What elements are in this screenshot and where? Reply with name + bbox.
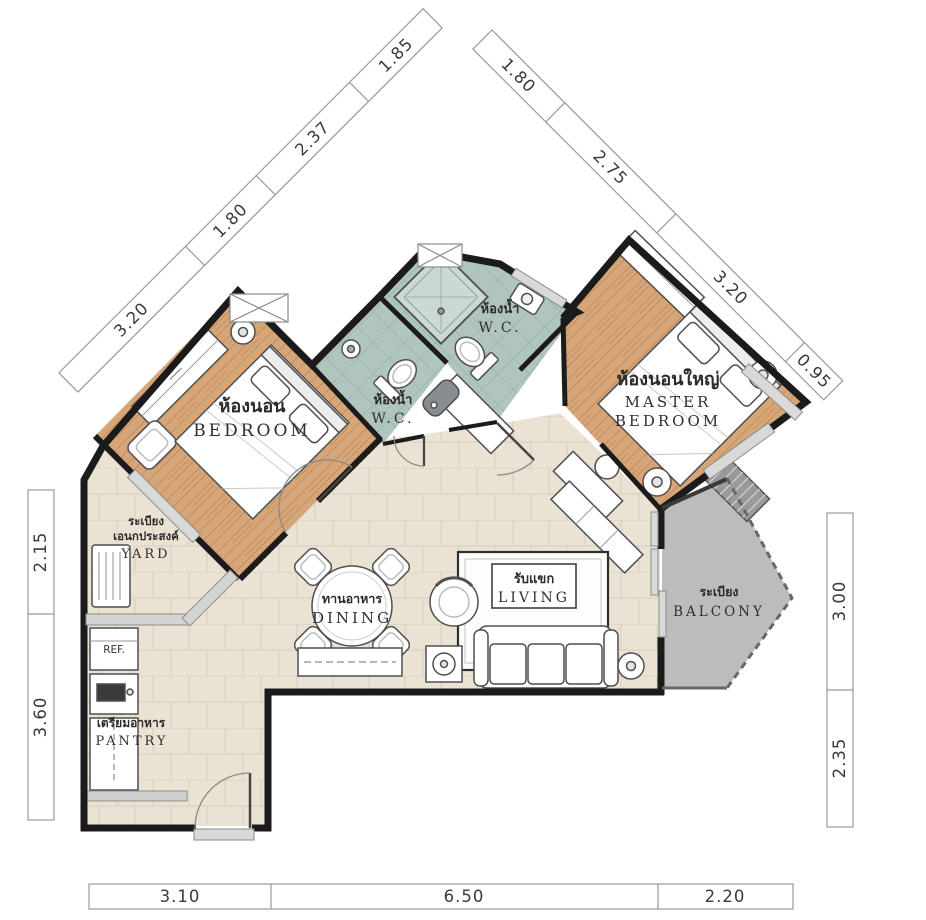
- dim-right-1: 3.00: [830, 581, 849, 622]
- yard-label-th1: ระเบียง: [128, 514, 164, 528]
- living-side-table: [426, 646, 462, 682]
- dim-strip-bottom: 3.10 6.50 2.20: [89, 884, 793, 909]
- master-nightstand-2-dot: [652, 477, 662, 487]
- yard-label-en: YARD: [120, 547, 170, 562]
- kitchen-counter-cap: [87, 791, 187, 801]
- master-bedroom-label-en1: MASTER: [625, 393, 712, 411]
- kitchen-sink-unit: [90, 674, 138, 714]
- balcony-label-en: BALCONY: [673, 604, 765, 620]
- dining-label-en: DINING: [312, 609, 392, 627]
- bedroom-label-th: ห้องนอน: [219, 396, 287, 417]
- sofa: [474, 626, 618, 688]
- dining-sideboard: [298, 648, 402, 676]
- entry-door-sill: [194, 829, 254, 840]
- bedroom-shaft-ledge: [230, 294, 288, 322]
- yard-divider-low-wall: [86, 614, 188, 625]
- dim-left-2: 3.60: [31, 697, 50, 738]
- yard-label-th2: เอนกประสงค์: [113, 529, 179, 543]
- balcony-floor: [662, 477, 792, 688]
- balcony-sliding-panel-3: [659, 591, 666, 637]
- sofa-side-lamp-dot: [627, 662, 636, 671]
- master-bedroom-label-en2: BEDROOM: [615, 412, 721, 430]
- dim-right-2: 2.35: [830, 738, 849, 779]
- balcony-sliding-panel-2: [651, 549, 658, 595]
- living-label-en: LIVING: [498, 590, 570, 606]
- balcony-label-th: ระเบียง: [699, 584, 738, 599]
- floor-plan-drawing: ห้องนอน BEDROOM ห้องนอนใหญ่ MASTER BEDRO…: [0, 0, 926, 920]
- balcony-sliding-panel-1: [651, 512, 658, 546]
- dim-bottom-3: 2.20: [705, 887, 746, 906]
- dining-label-th: ทานอาหาร: [322, 591, 383, 606]
- floor-plan-canvas: ห้องนอน BEDROOM ห้องนอนใหญ่ MASTER BEDRO…: [0, 0, 926, 920]
- pantry-label-en: PANTRY: [96, 734, 169, 749]
- dining-table: [312, 566, 392, 646]
- wc-shaft-ledge: [418, 244, 462, 267]
- dim-bottom-2: 6.50: [444, 887, 485, 906]
- wall-master-west: [563, 318, 565, 406]
- living-armchair: [430, 578, 478, 626]
- dim-strip-right: 3.00 2.35: [827, 513, 853, 827]
- wc-main-label-en: W.C.: [478, 320, 521, 336]
- dim-left-1: 2.15: [31, 532, 50, 573]
- refrigerator-label: REF.: [103, 644, 125, 656]
- wc-small-sink-drain: [348, 346, 355, 353]
- pantry-label-th: เตรียมอาหาร: [97, 716, 166, 730]
- living-label-th: รับแขก: [514, 572, 555, 587]
- bedroom-label-en: BEDROOM: [193, 421, 311, 441]
- dim-bottom-1: 3.10: [160, 887, 201, 906]
- wc-small-label-en: W.C.: [371, 411, 414, 427]
- master-bedroom-label-th: ห้องนอนใหญ่: [617, 368, 720, 390]
- dim-strip-left: 2.15 3.60: [28, 490, 54, 820]
- bedroom-nightstand-dot: [239, 328, 248, 337]
